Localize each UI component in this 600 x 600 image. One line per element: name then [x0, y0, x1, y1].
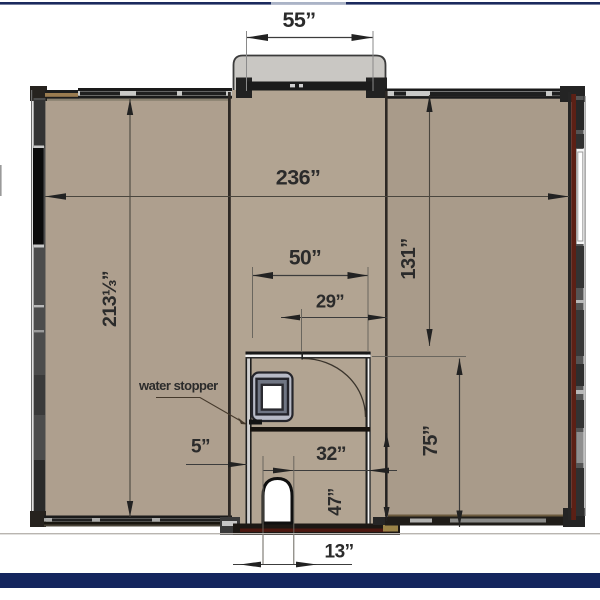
svg-text:236’’: 236’’ [276, 166, 321, 190]
svg-text:131’’: 131’’ [398, 238, 420, 279]
svg-text:water stopper: water stopper [138, 378, 218, 393]
svg-text:47’’: 47’’ [325, 488, 345, 515]
svg-text:75’’: 75’’ [420, 426, 442, 457]
svg-text:13’’: 13’’ [325, 542, 354, 563]
svg-text:55’’: 55’’ [282, 8, 315, 32]
svg-text:32’’: 32’’ [316, 443, 346, 465]
svg-text:213⅓’’: 213⅓’’ [99, 271, 121, 327]
svg-text:50’’: 50’’ [289, 247, 321, 270]
svg-text:5’’: 5’’ [191, 437, 210, 458]
svg-text:29’’: 29’’ [316, 291, 344, 312]
